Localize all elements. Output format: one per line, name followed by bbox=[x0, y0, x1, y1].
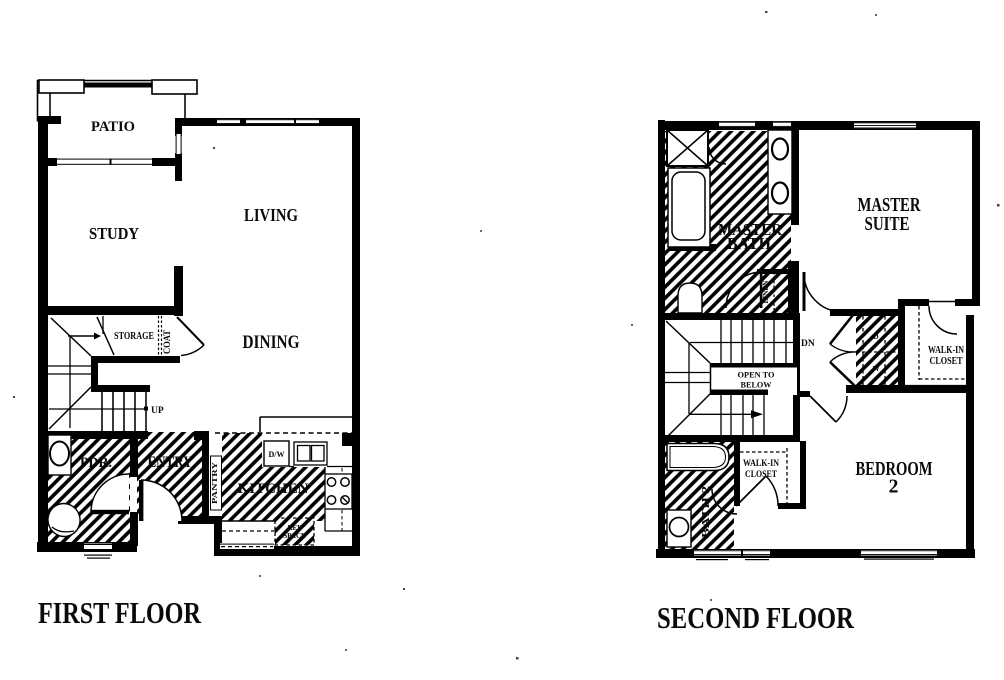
svg-text:PATIO: PATIO bbox=[91, 119, 135, 135]
svg-text:D/W: D/W bbox=[269, 450, 285, 459]
svg-text:PANTRY: PANTRY bbox=[210, 461, 219, 504]
svg-text:W: W bbox=[873, 365, 880, 373]
svg-text:WALK-IN: WALK-IN bbox=[928, 345, 965, 356]
svg-text:KITCHEN: KITCHEN bbox=[238, 481, 309, 497]
svg-text:BATH 2: BATH 2 bbox=[700, 485, 712, 538]
svg-text:DN: DN bbox=[801, 339, 815, 349]
svg-text:D: D bbox=[873, 333, 878, 341]
svg-text:BELOW: BELOW bbox=[741, 380, 772, 390]
svg-text:CLOSET: CLOSET bbox=[745, 470, 778, 480]
svg-text:STUDY: STUDY bbox=[89, 224, 139, 243]
svg-text:MASTER: MASTER bbox=[858, 195, 922, 216]
svg-text:COAT: COAT bbox=[163, 329, 173, 354]
svg-text:REF: REF bbox=[288, 524, 302, 532]
svg-text:OPEN TO: OPEN TO bbox=[738, 370, 775, 380]
svg-text:2: 2 bbox=[889, 477, 899, 498]
svg-text:UP: UP bbox=[151, 406, 164, 416]
svg-text:STORAGE: STORAGE bbox=[114, 330, 154, 342]
svg-text:DINING: DINING bbox=[243, 332, 300, 353]
svg-text:SECOND FLOOR: SECOND FLOOR bbox=[657, 600, 854, 635]
svg-text:SPACE: SPACE bbox=[283, 532, 306, 540]
svg-text:PDR.: PDR. bbox=[80, 455, 112, 471]
svg-text:LINEN: LINEN bbox=[762, 281, 770, 304]
svg-text:BATH: BATH bbox=[727, 234, 771, 253]
svg-text:FIRST FLOOR: FIRST FLOOR bbox=[38, 595, 201, 630]
svg-text:ENTRY: ENTRY bbox=[148, 454, 193, 471]
svg-text:CLOSET: CLOSET bbox=[930, 356, 963, 367]
svg-text:WALK-IN: WALK-IN bbox=[743, 459, 779, 469]
svg-text:LIVING: LIVING bbox=[244, 205, 298, 225]
svg-text:SUITE: SUITE bbox=[865, 214, 910, 235]
